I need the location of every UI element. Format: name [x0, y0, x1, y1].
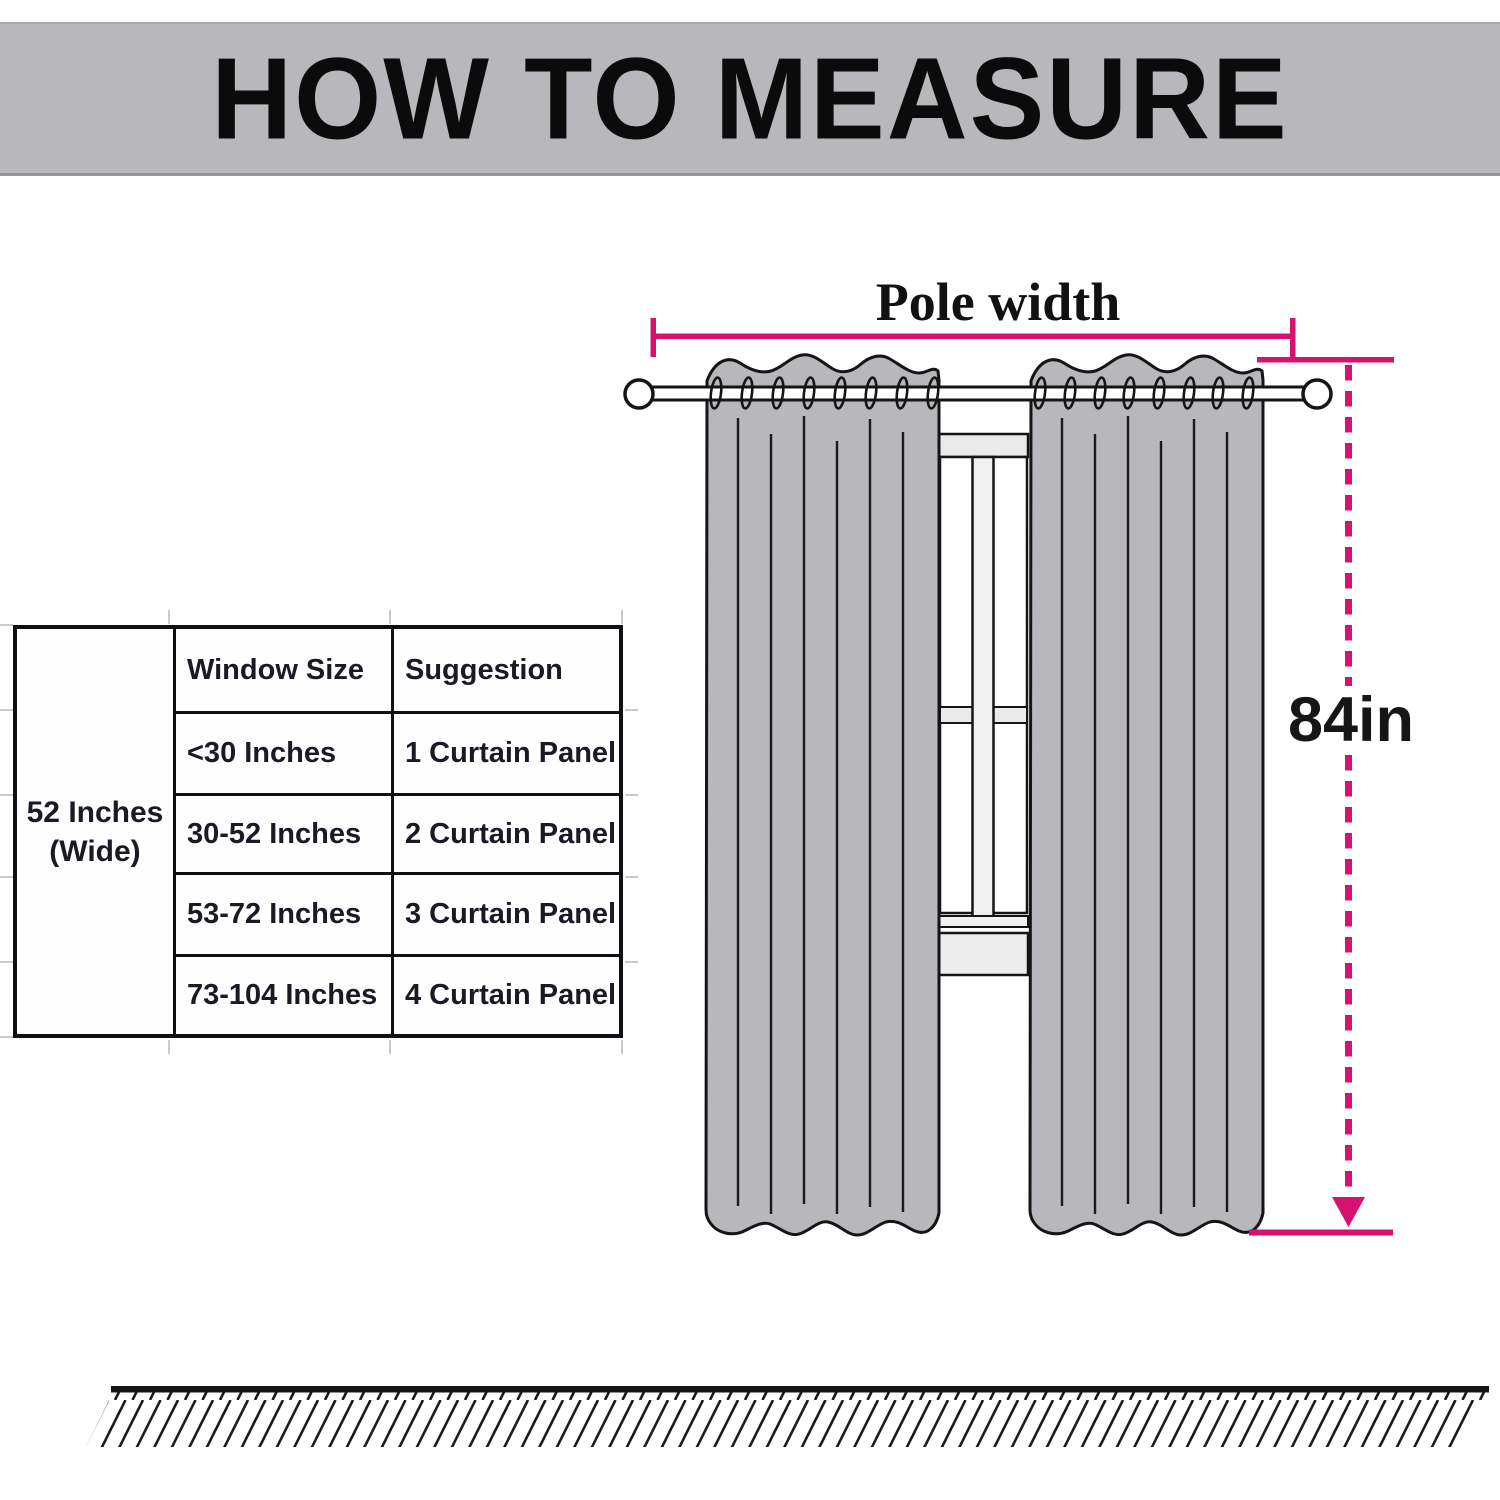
- window-sill: [938, 933, 1028, 975]
- window-transom-right: [993, 707, 1027, 723]
- pole-width-measure: Pole width: [651, 272, 1296, 357]
- window-bottom-frame: [938, 916, 1028, 927]
- floor-line: [111, 1386, 1489, 1393]
- table-rowspan-width-cell: 52 Inches (Wide): [17, 629, 173, 1034]
- gridline-tick: [625, 709, 638, 711]
- infographic: HOW TO MEASURE: [0, 0, 1500, 1500]
- window-transom-left: [940, 707, 973, 723]
- col-header-window-size: Window Size: [173, 629, 391, 711]
- gridline-tick: [389, 610, 391, 624]
- table-cell-window-size: <30 Inches: [173, 711, 391, 793]
- size-suggestion-table: 52 Inches (Wide) Window Size Suggestion …: [13, 625, 623, 1038]
- pole-width-tick-left: [651, 318, 657, 357]
- gridline-tick: [0, 876, 13, 878]
- table-cell-suggestion: 3 Curtain Panel: [391, 872, 619, 954]
- floor-hatching: [86, 1392, 1487, 1447]
- gridline-tick: [168, 1040, 170, 1054]
- table-cell-window-size: 53-72 Inches: [173, 872, 391, 954]
- window-mullion: [973, 457, 994, 917]
- curtain-panel-right: [1030, 355, 1263, 1235]
- floor: [86, 1386, 1489, 1447]
- pole-width-line: [653, 334, 1293, 340]
- rod-bar: [651, 387, 1305, 400]
- table-cell-window-size: 30-52 Inches: [173, 793, 391, 872]
- gridline-tick: [625, 794, 638, 796]
- length-arrowhead-down: [1332, 1197, 1365, 1227]
- curtain-panel-left: [706, 355, 939, 1235]
- table-cell-suggestion: 1 Curtain Panel: [391, 711, 619, 793]
- col-header-suggestion: Suggestion: [391, 629, 619, 711]
- gridline-tick: [0, 1036, 13, 1038]
- pole-width-label: Pole width: [876, 272, 1121, 332]
- width-label-line2: (Wide): [49, 832, 140, 871]
- gridline-tick: [625, 876, 638, 878]
- rod-finial-left: [625, 380, 653, 408]
- window-top-frame: [938, 434, 1028, 457]
- length-bottom-bar: [1249, 1230, 1393, 1236]
- gridline-tick: [621, 610, 623, 624]
- gridline-tick: [0, 961, 13, 963]
- length-top-bar: [1257, 357, 1394, 363]
- rod-finial-right: [1303, 380, 1331, 408]
- width-label-line1: 52 Inches: [27, 793, 164, 832]
- gridline-tick: [625, 961, 638, 963]
- gridline-tick: [0, 794, 13, 796]
- gridline-tick: [621, 1040, 623, 1054]
- gridline-tick: [0, 709, 13, 711]
- table-cell-suggestion: 4 Curtain Panel: [391, 954, 619, 1034]
- curtain-length-label: 84in: [1288, 685, 1414, 755]
- table-cell-window-size: 73-104 Inches: [173, 954, 391, 1034]
- window: [938, 434, 1028, 975]
- gridline-tick: [0, 624, 13, 626]
- gridline-tick: [389, 1040, 391, 1054]
- table-cell-suggestion: 2 Curtain Panel: [391, 793, 619, 872]
- gridline-tick: [168, 610, 170, 624]
- pole-width-tick-right: [1290, 318, 1296, 357]
- curtain-length-measure: 84in: [1249, 357, 1418, 1236]
